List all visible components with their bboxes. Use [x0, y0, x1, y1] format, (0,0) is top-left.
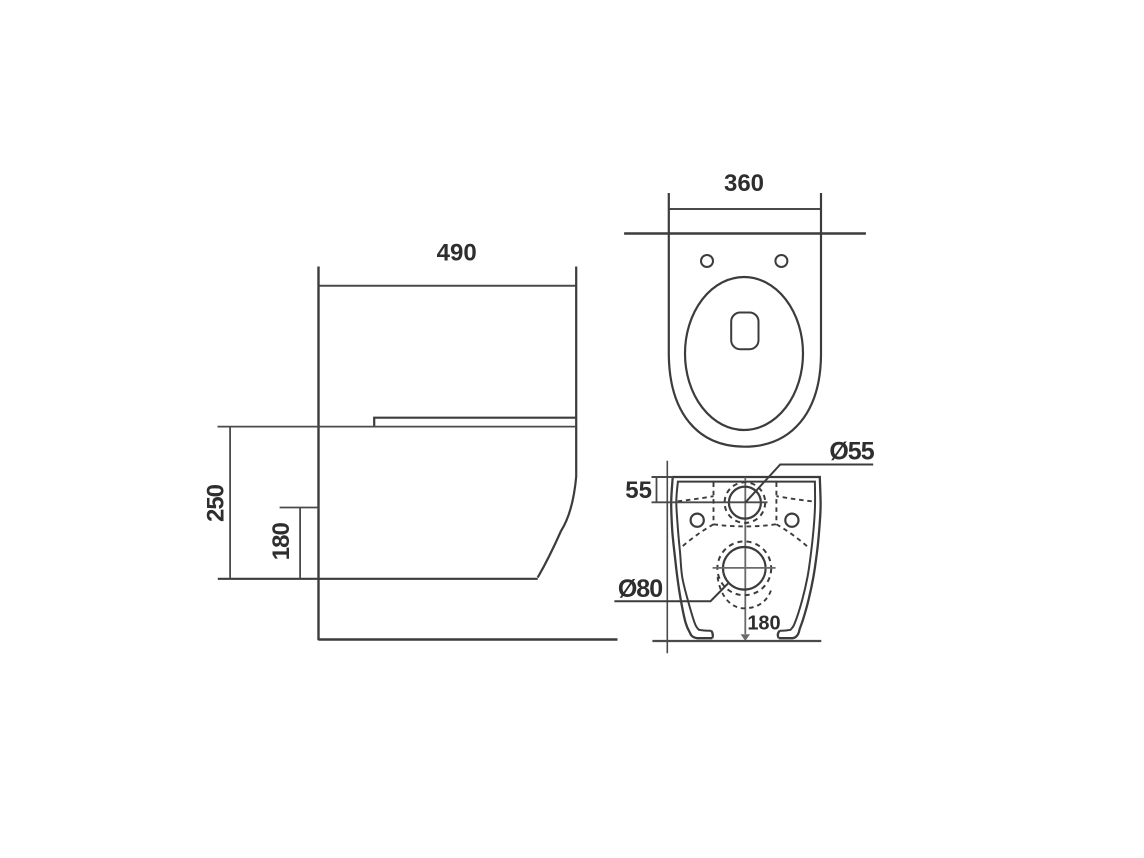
svg-text:Ø55: Ø55 [829, 438, 874, 466]
svg-text:490: 490 [437, 240, 477, 267]
svg-text:360: 360 [724, 170, 764, 197]
svg-text:250: 250 [203, 484, 230, 522]
svg-text:Ø80: Ø80 [618, 575, 662, 603]
svg-text:55: 55 [625, 477, 652, 504]
svg-text:180: 180 [268, 523, 295, 561]
svg-text:180: 180 [747, 613, 780, 635]
